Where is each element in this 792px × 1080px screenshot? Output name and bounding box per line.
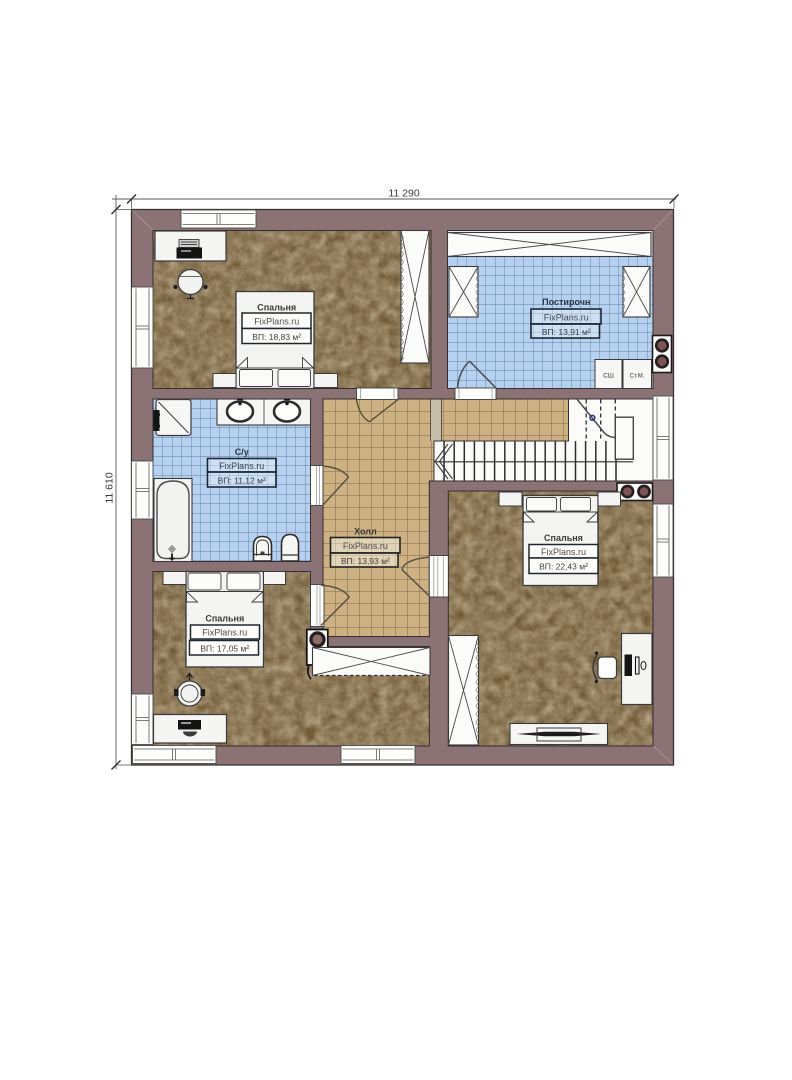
svg-text:Спальня: Спальня: [544, 533, 583, 543]
svg-text:Холл: Холл: [354, 527, 377, 537]
svg-text:ВП: 17,05 м²: ВП: 17,05 м²: [200, 644, 249, 654]
svg-text:Спальня: Спальня: [257, 303, 296, 313]
svg-text:СШ: СШ: [603, 373, 614, 380]
svg-text:ВП: 22,43 м²: ВП: 22,43 м²: [539, 562, 588, 572]
svg-text:11 290: 11 290: [388, 188, 419, 200]
svg-text:Спальня: Спальня: [205, 614, 244, 624]
svg-text:11 610: 11 610: [104, 472, 116, 503]
svg-text:FixPlans.ru: FixPlans.ru: [202, 628, 247, 638]
svg-text:FixPlans.ru: FixPlans.ru: [343, 541, 388, 551]
svg-text:FixPlans.ru: FixPlans.ru: [254, 317, 299, 327]
svg-text:FixPlans.ru: FixPlans.ru: [541, 547, 586, 557]
svg-text:FixPlans.ru: FixPlans.ru: [544, 313, 589, 323]
svg-text:ВП: 13,91 м²: ВП: 13,91 м²: [542, 327, 591, 337]
svg-text:Постирочн: Постирочн: [542, 297, 590, 307]
svg-text:С/у: С/у: [235, 447, 249, 457]
svg-text:FixPlans.ru: FixPlans.ru: [219, 461, 264, 471]
svg-text:ВП: 18,83 м²: ВП: 18,83 м²: [252, 332, 301, 342]
svg-text:Ст.М.: Ст.М.: [630, 374, 645, 380]
svg-text:ВП: 11,12 м²: ВП: 11,12 м²: [218, 476, 266, 486]
svg-text:ВП: 13,93 м²: ВП: 13,93 м²: [341, 556, 390, 566]
